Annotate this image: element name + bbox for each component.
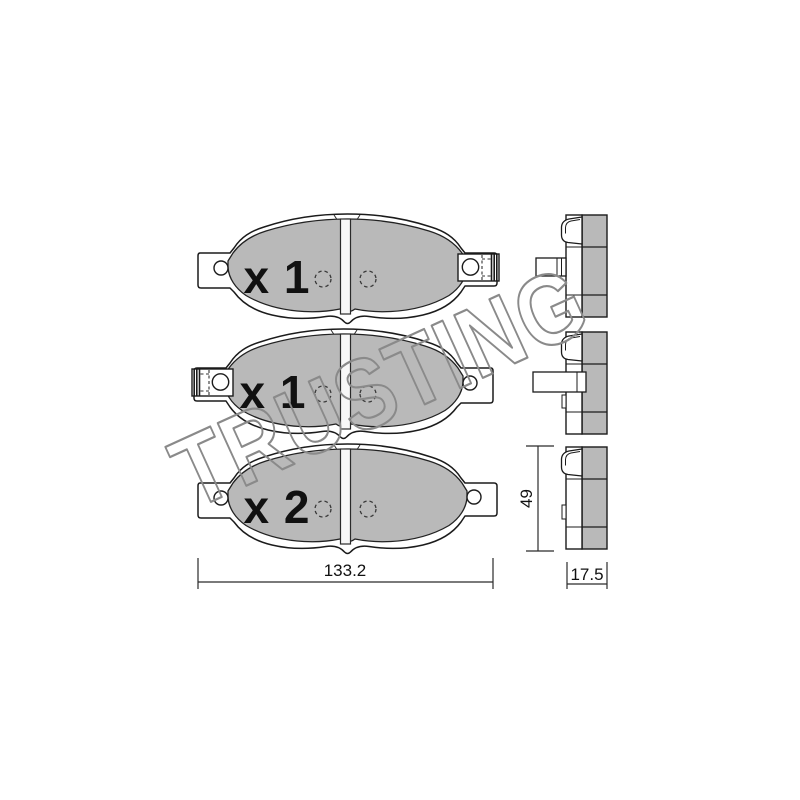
backing-bump — [562, 395, 566, 408]
ear-hole — [467, 490, 481, 504]
brake-pad-drawing: x 1 x 1 x 2 133.2 — [0, 0, 800, 800]
dimension-thickness-label: 17.5 — [570, 565, 603, 584]
dimension-height: 49 — [517, 446, 554, 551]
brake-pad-side-view-3 — [562, 447, 608, 549]
dimension-width-label: 133.2 — [324, 561, 367, 580]
backing-bump — [562, 505, 566, 519]
pad-quantity-label: x 1 — [244, 251, 311, 303]
dimension-thickness: 17.5 — [567, 562, 607, 589]
dimension-height-label: 49 — [517, 489, 536, 508]
ear-hole — [214, 261, 228, 275]
technical-drawing-page: x 1 x 1 x 2 133.2 — [0, 0, 800, 800]
dimension-width: 133.2 — [198, 558, 493, 589]
